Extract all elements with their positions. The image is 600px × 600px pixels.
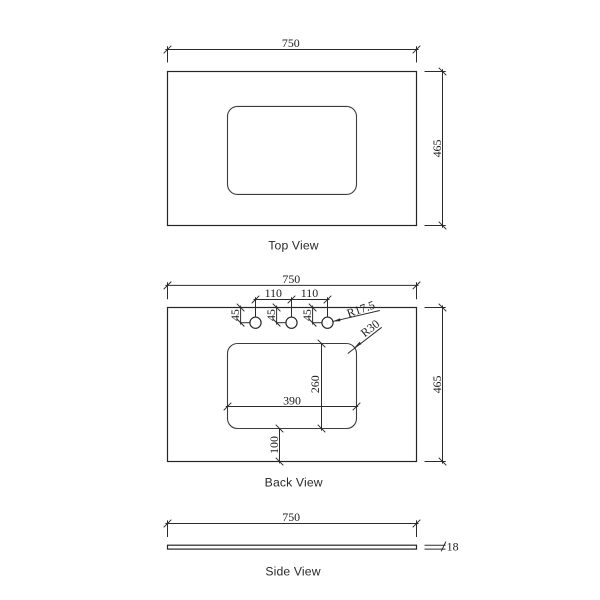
svg-text:110: 110 bbox=[301, 286, 318, 300]
svg-text:750: 750 bbox=[282, 510, 300, 524]
svg-text:465: 465 bbox=[430, 376, 444, 394]
svg-text:45: 45 bbox=[264, 309, 278, 321]
svg-text:18: 18 bbox=[447, 539, 459, 553]
svg-text:110: 110 bbox=[265, 286, 282, 300]
svg-text:750: 750 bbox=[282, 36, 300, 50]
svg-text:45: 45 bbox=[228, 309, 242, 321]
svg-text:260: 260 bbox=[308, 375, 322, 393]
svg-text:45: 45 bbox=[300, 309, 314, 321]
svg-text:Top View: Top View bbox=[268, 239, 318, 253]
svg-text:100: 100 bbox=[267, 436, 281, 454]
svg-text:750: 750 bbox=[282, 272, 300, 286]
svg-text:Back View: Back View bbox=[265, 475, 323, 489]
svg-text:Side View: Side View bbox=[265, 565, 320, 579]
svg-text:465: 465 bbox=[430, 140, 444, 158]
svg-text:390: 390 bbox=[283, 393, 301, 407]
